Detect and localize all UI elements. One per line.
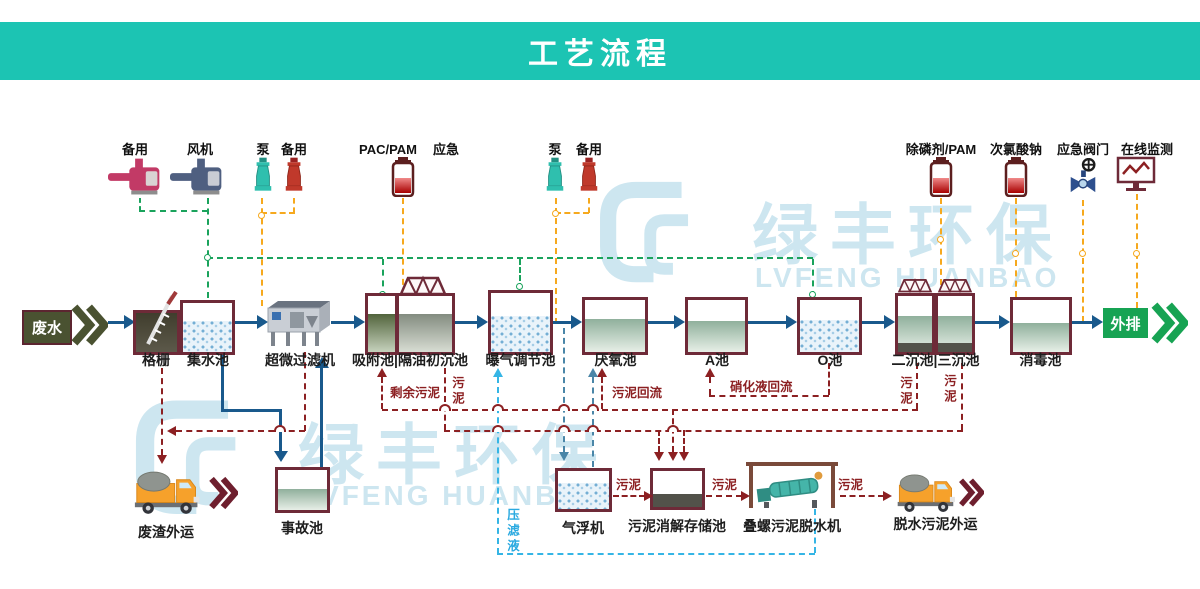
arrowhead (1092, 315, 1103, 329)
arrowhead (167, 426, 176, 436)
truss-icon (937, 275, 973, 300)
flow-line (861, 321, 886, 324)
aeration-label: 曝气调节池 (478, 352, 563, 368)
sludge-label: 污泥 (898, 376, 912, 407)
junction-dot (204, 254, 211, 261)
anaerobic-label: 厌氧池 (588, 352, 643, 368)
disinfect-tank (1010, 297, 1072, 355)
tank-fill (278, 489, 327, 510)
sludge-line (161, 368, 163, 455)
filtrate-label: 压滤液 (503, 508, 522, 555)
return-line (320, 368, 323, 467)
junction-dot (1079, 250, 1086, 257)
tank-fill (1013, 323, 1069, 352)
influent-label: 废水 (32, 317, 62, 338)
valve-line (1082, 200, 1084, 322)
logo-mark-icon (593, 168, 701, 294)
junction-dot (1012, 250, 1019, 257)
air-line (207, 198, 209, 298)
tank-fill (183, 321, 232, 352)
junction-dot (937, 236, 944, 243)
arrowhead (477, 315, 488, 329)
waste-truck-icon (133, 468, 205, 523)
waste-out-label: 废渣外运 (126, 524, 206, 540)
standby-blower-label: 备用 (113, 142, 157, 157)
truss-icon (398, 275, 448, 300)
sludge-return-line (382, 409, 918, 411)
arrowhead (597, 368, 607, 377)
disinfect-label: 消毒池 (1013, 352, 1068, 368)
collect-tank (180, 300, 235, 355)
accident-tank (275, 467, 330, 513)
accident-label: 事故池 (272, 520, 332, 536)
dosing-line (261, 212, 295, 214)
arrowhead (354, 315, 365, 329)
filtrate-line (497, 553, 815, 555)
flotation-return-line (592, 377, 594, 467)
junction-dot (516, 283, 523, 290)
influent-box: 废水 (22, 310, 72, 345)
junction-dot (1133, 250, 1140, 257)
flow-line (331, 321, 356, 324)
crossing-hop (274, 425, 286, 432)
naclo-dosing-tank-icon (1000, 157, 1032, 202)
tank-fill (688, 321, 745, 352)
air-main-line (207, 257, 813, 259)
arrowhead (559, 452, 569, 461)
arrowhead (157, 455, 167, 464)
bypass-line (221, 409, 282, 412)
tank-fill (585, 319, 645, 352)
screw-press-label: 叠螺污泥脱水机 (736, 518, 848, 534)
sludge-line (916, 363, 918, 409)
sludge-out-label: 脱水污泥外运 (888, 516, 983, 532)
sludge-return-label: 污泥回流 (612, 386, 662, 400)
arrowhead (884, 315, 895, 329)
arrowhead (644, 491, 653, 501)
arrowhead (654, 452, 664, 461)
sludge-line (706, 495, 742, 497)
arrowhead (571, 315, 582, 329)
grid-label: 格栅 (131, 352, 181, 368)
crossing-hop (558, 425, 570, 432)
sludge-label: 污泥 (712, 478, 737, 492)
crossing-hop (587, 404, 599, 411)
arrowhead (493, 368, 503, 377)
oil-settle-tank (396, 293, 455, 355)
standby-pump-label: 备用 (567, 142, 611, 157)
sediment (898, 343, 932, 352)
sludge-store-label: 污泥消解存储池 (622, 518, 732, 534)
aeration-tank (488, 290, 553, 355)
standby-blower-icon (108, 158, 170, 203)
scum-line (563, 328, 565, 452)
pac-pam-label: PAC/PAM (352, 142, 424, 157)
sludge-line (444, 368, 446, 430)
collect-label: 集水池 (178, 352, 238, 368)
flow-line (974, 321, 1001, 324)
standby-pump-icon (283, 156, 305, 201)
nitrified-return-label: 硝化液回流 (730, 380, 793, 394)
sludge-line (683, 430, 685, 452)
sludge-line (444, 430, 963, 432)
arrowhead (786, 315, 797, 329)
tank-fill (800, 320, 859, 352)
standby-pump-label: 备用 (272, 142, 316, 157)
outfall-chevron-icon (1150, 300, 1188, 351)
nitrified-return-line (709, 395, 829, 397)
sludge-label: 污泥 (838, 478, 863, 492)
anaerobic-tank (582, 297, 648, 355)
flow-line (1071, 321, 1094, 324)
sludge-label: 污泥 (942, 374, 956, 405)
ultrafilter-machine-icon (266, 298, 332, 355)
phos-dosing-tank-icon (925, 157, 957, 202)
process-flow-diagram: 绿丰环保 LVFENG HUANBAO 绿丰环保 LVFENG HUANBAO … (0, 0, 1200, 589)
online-monitor-icon (1116, 156, 1156, 199)
sludge-label: 污泥 (450, 376, 464, 407)
tank-fill (399, 314, 452, 352)
flow-line (647, 321, 676, 324)
emergency-label: 应急 (426, 142, 466, 157)
phos-pam-label: 除磷剂/PAM (896, 142, 986, 157)
outfall-box: 外排 (1103, 308, 1148, 338)
adsorb-label: 吸附池|隔油初沉池 (347, 352, 473, 368)
page-title: 工艺流程 (528, 29, 672, 73)
sediment (938, 343, 972, 352)
adsorb-tank (365, 293, 398, 355)
settle-label: 二沉池|三沉池 (888, 352, 983, 368)
sludge-truck-icon (896, 471, 960, 521)
dosing-line (1015, 198, 1017, 297)
pump-icon (544, 156, 566, 201)
waste-out-chevron-icon (208, 473, 238, 518)
ultrafilter-label: 超微过滤机 (260, 352, 340, 368)
outfall-label: 外排 (1110, 313, 1140, 334)
emergency-valve-label: 应急阀门 (1051, 142, 1115, 157)
crossing-hop (492, 404, 504, 411)
sludge-line (601, 377, 603, 409)
sludge-out-chevron-icon (958, 475, 984, 515)
tank-fill (491, 316, 550, 352)
influent-chevron-icon (70, 301, 108, 354)
tertiary-settle-tank (935, 293, 975, 355)
rake-icon (138, 288, 180, 355)
flow-line (235, 321, 259, 324)
standby-pump-icon (578, 156, 600, 201)
sludge-line (613, 495, 645, 497)
arrowhead (668, 452, 678, 461)
junction-dot (552, 210, 559, 217)
fan-blower-icon (170, 158, 232, 203)
o-tank-label: O池 (812, 352, 848, 368)
flow-line (455, 321, 479, 324)
online-monitor-label: 在线监测 (1114, 142, 1180, 157)
title-banner: 工艺流程 (0, 22, 1200, 80)
arrowhead (883, 491, 892, 501)
arrowhead (674, 315, 685, 329)
screw-press-icon (746, 460, 838, 515)
sludge-line (961, 363, 963, 430)
arrowhead (705, 368, 715, 377)
junction-dot (258, 212, 265, 219)
a-tank (685, 297, 748, 355)
arrowhead (741, 491, 750, 501)
arrowhead (588, 368, 598, 377)
sludge-store-tank (650, 468, 705, 510)
sludge-line (381, 377, 383, 409)
excess-sludge-label: 剩余污泥 (390, 386, 440, 400)
nitrified-return-line (709, 377, 711, 395)
arrowhead (377, 368, 387, 377)
sludge-label: 污泥 (616, 478, 641, 492)
truss-icon (897, 275, 933, 300)
crossing-hop (587, 425, 599, 432)
flotation-label: 气浮机 (553, 520, 613, 536)
arrowhead (679, 452, 689, 461)
arrowhead (999, 315, 1010, 329)
pump-icon (252, 156, 274, 201)
o-tank (797, 297, 862, 355)
pac-dosing-tank-icon (387, 157, 419, 202)
sludge-line (658, 430, 660, 452)
sludge-line (840, 495, 884, 497)
logo-watermark (593, 168, 701, 299)
naclo-label: 次氯酸钠 (981, 142, 1051, 157)
emergency-valve-icon (1066, 158, 1100, 201)
crossing-hop (492, 425, 504, 432)
a-tank-label: A池 (697, 352, 737, 368)
secondary-settle-tank (895, 293, 935, 355)
tank-fill (368, 314, 395, 352)
air-line (139, 210, 208, 212)
crossing-hop (667, 425, 679, 432)
fan-label: 风机 (178, 142, 222, 157)
pump-label: 泵 (541, 142, 569, 157)
crossing-hop (558, 404, 570, 411)
sediment (653, 494, 702, 507)
tank-fill (558, 483, 609, 509)
flotation-tank (555, 468, 612, 512)
flow-line (552, 321, 573, 324)
arrowhead (274, 451, 288, 462)
flow-line (747, 321, 788, 324)
dosing-line (555, 212, 589, 214)
